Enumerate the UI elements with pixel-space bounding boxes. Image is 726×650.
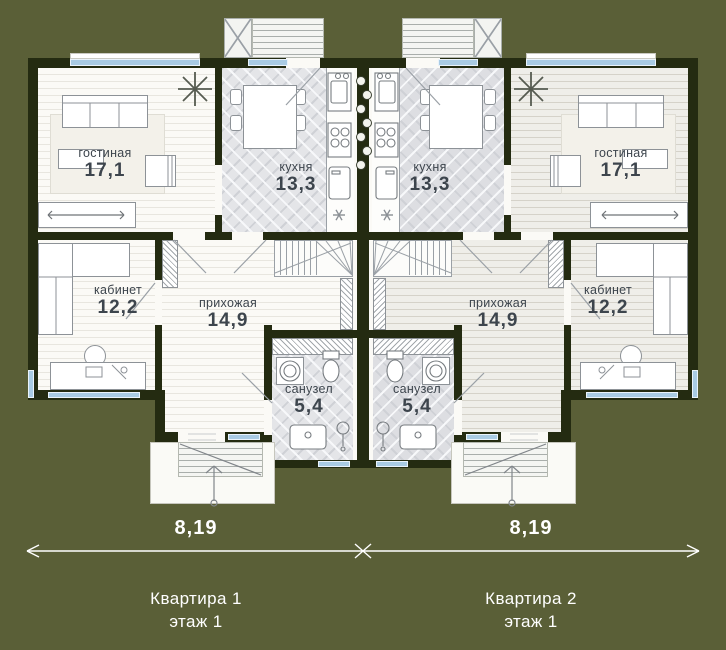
apartment-2-caption: Квартира 2 этаж 1 — [485, 588, 577, 634]
washer-drum — [426, 361, 446, 381]
apartment-graphics — [28, 15, 363, 510]
apartment-2-floor: этаж 1 — [485, 611, 577, 634]
toilet — [387, 351, 403, 382]
apartment-graphics — [363, 15, 698, 510]
door-swings — [126, 68, 320, 403]
room-label-kitchen-2: кухня 13,3 — [410, 160, 451, 195]
room-label-living-1: гостиная 17,1 — [78, 146, 131, 181]
freezer-asterisk-icon — [381, 210, 393, 220]
room-label-hall-2: прихожая 14,9 — [469, 296, 527, 331]
desk-items — [86, 365, 127, 379]
bath-sink — [290, 425, 326, 449]
apartment-1-caption: Квартира 1 этаж 1 — [150, 588, 242, 634]
kitchen-sink — [328, 73, 351, 111]
apartment-1-name: Квартира 1 — [150, 588, 242, 611]
dimension-line — [18, 540, 708, 562]
room-label-bath-1: санузел 5,4 — [285, 382, 333, 417]
apartment-1-floor: этаж 1 — [150, 611, 242, 634]
shower — [337, 422, 349, 451]
radiator-symbol — [48, 211, 124, 219]
vent-stack-icon — [355, 76, 371, 174]
door-swings — [406, 68, 600, 403]
stove — [375, 123, 398, 157]
stove — [328, 123, 351, 157]
bath-sink — [400, 425, 436, 449]
entry-arrow — [465, 444, 546, 506]
room-label-kitchen-1: кухня 13,3 — [276, 160, 317, 195]
freezer-asterisk-icon — [333, 210, 345, 220]
plan-line-art — [363, 15, 698, 510]
plant-icon — [178, 72, 212, 106]
door-threshold — [510, 434, 538, 440]
stair-winders — [374, 241, 451, 275]
floor-plan-canvas: гостиная 17,1 кухня 13,3 кабинет 12,2 пр… — [0, 0, 726, 650]
door-threshold — [188, 434, 216, 440]
radiator-symbol — [602, 211, 678, 219]
dimension-value-2: 8,19 — [510, 517, 553, 540]
fridge — [329, 167, 350, 199]
plan-line-art — [28, 15, 363, 510]
room-label-bath-2: санузел 5,4 — [393, 382, 441, 417]
dimension-value-1: 8,19 — [175, 517, 218, 540]
toilet — [323, 351, 339, 382]
plant-icon — [514, 72, 548, 106]
stair-winders — [275, 241, 352, 275]
entry-arrow — [180, 444, 261, 506]
fridge — [376, 167, 397, 199]
shower — [377, 422, 389, 451]
apartment-2-name: Квартира 2 — [485, 588, 577, 611]
kitchen-sink — [375, 73, 398, 111]
room-label-living-2: гостиная 17,1 — [594, 146, 647, 181]
apartment-1 — [28, 15, 363, 510]
washer-drum — [280, 361, 300, 381]
room-label-hall-1: прихожая 14,9 — [199, 296, 257, 331]
apartment-2 — [363, 15, 698, 510]
room-label-office-2: кабинет 12,2 — [584, 283, 632, 318]
desk-items — [599, 365, 640, 379]
room-label-office-1: кабинет 12,2 — [94, 283, 142, 318]
